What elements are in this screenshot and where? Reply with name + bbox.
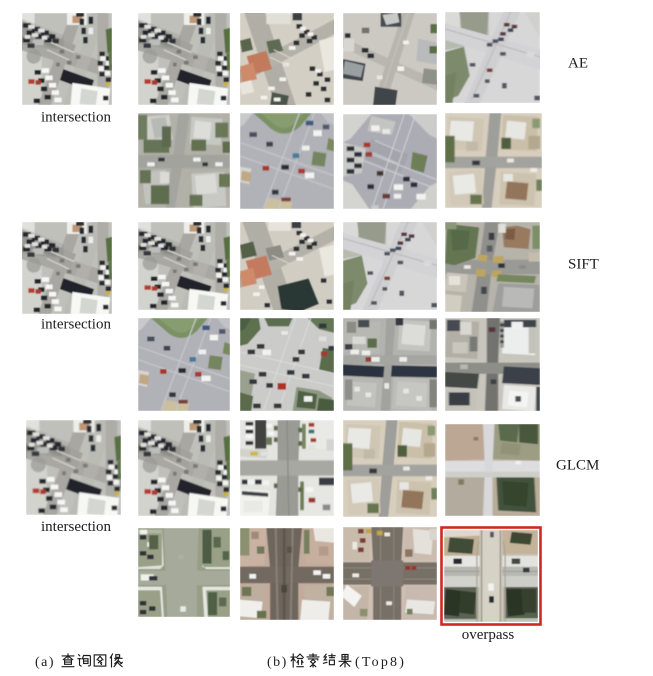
svg-text:SIFT: SIFT <box>568 257 599 273</box>
svg-text:(a): (a) <box>35 655 55 670</box>
svg-text:intersection: intersection <box>41 317 111 333</box>
svg-text:(Top8): (Top8) <box>355 655 406 670</box>
svg-text:(b): (b) <box>267 655 288 670</box>
svg-text:GLCM: GLCM <box>556 458 599 474</box>
svg-text:intersection: intersection <box>41 519 111 535</box>
svg-text:intersection: intersection <box>41 110 111 126</box>
svg-text:overpass: overpass <box>462 627 515 643</box>
svg-text:AE: AE <box>568 56 588 72</box>
